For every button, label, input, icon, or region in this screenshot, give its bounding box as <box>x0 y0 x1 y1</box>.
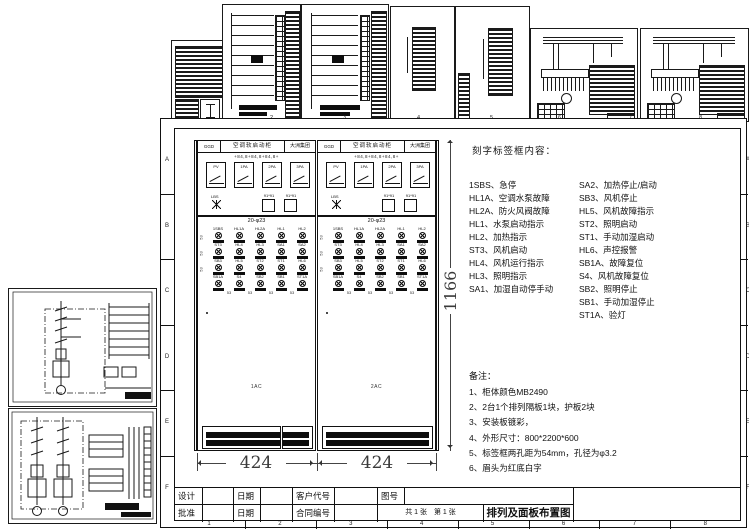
contactor-block <box>651 69 699 78</box>
list-item: HL6、声控报警 <box>579 244 691 257</box>
title-bar <box>239 112 267 116</box>
device-code: SB1 <box>397 275 405 279</box>
schematic-thumbnail-top-4 <box>390 6 455 122</box>
device-code: ST3 <box>334 243 341 247</box>
device-code: S4 <box>357 275 362 279</box>
zone-letter-right: B <box>742 223 749 229</box>
wire-comb <box>653 78 697 91</box>
device-code: HL6 <box>418 259 425 263</box>
list-item: 6、眉头为红底白字 <box>469 461 729 476</box>
indicator-lamp-symbol <box>398 280 405 287</box>
panel-meter: 3PA <box>290 162 310 188</box>
device-unit: ST1 <box>392 259 410 275</box>
indicator-lamp-symbol <box>257 232 264 239</box>
device-code: HL1A <box>234 227 244 231</box>
zone-tick <box>161 259 174 260</box>
device-unit: HL2 <box>413 227 431 243</box>
device-code: SA1 <box>277 243 285 247</box>
meter-label: 3PA <box>411 164 429 169</box>
device-code: ST1A <box>417 275 427 279</box>
dim-ext-line <box>317 453 318 471</box>
device-code: SA2 <box>298 243 306 247</box>
device-code: HL5 <box>355 259 362 263</box>
zone-letter-left: E <box>161 419 173 425</box>
indicator-lamp-symbol <box>299 248 306 255</box>
device-code: ST1A <box>297 275 307 279</box>
indicator-lamp-symbol <box>215 264 222 271</box>
window-size-label: 91*91 <box>402 193 420 198</box>
indicator-lamp-symbol <box>419 264 426 271</box>
indicator-lamp-symbol <box>398 248 405 255</box>
cabinet-header: GGD空调软启动柜大洲集团 <box>198 141 315 153</box>
component-column <box>360 15 370 101</box>
device-unit: ST2 <box>371 259 389 275</box>
cabinet-title: 空调软启动柜 <box>221 141 284 152</box>
indicator-lamp-symbol <box>257 264 264 271</box>
panel-meter: PV <box>206 162 226 188</box>
device-code: SB2 <box>256 275 264 279</box>
device-code: ST1 <box>277 259 284 263</box>
terminal-table <box>412 27 436 91</box>
zone-tick <box>161 325 174 326</box>
zone-tick <box>670 521 671 529</box>
zone-tick <box>529 521 530 529</box>
col-pitch-dim: 53 <box>360 290 380 295</box>
row-pitch-dim: 53 <box>319 251 324 255</box>
indicator-lamp-symbol <box>398 264 405 271</box>
device-unit: SA2 <box>413 243 431 259</box>
cabinet-code: GGD <box>318 141 341 152</box>
device-code: HL6 <box>298 259 305 263</box>
cabinet-title: 空调软启动柜 <box>341 141 404 152</box>
list-item: HL2A、防火风阀故障 <box>469 205 581 218</box>
device-unit: ST2 <box>251 259 269 275</box>
list-item: ST2、照明启动 <box>579 218 691 231</box>
row-pitch-dim: 53 <box>319 267 324 271</box>
terminal-strip <box>371 11 387 119</box>
zone-tick <box>387 521 388 529</box>
dim-arrow <box>198 460 201 466</box>
indicator-lamp-symbol <box>215 248 222 255</box>
switch-symbol <box>332 200 341 209</box>
device-unit: SA1 <box>392 243 410 259</box>
zone-tick <box>245 521 246 529</box>
dim-arrow <box>310 460 313 466</box>
zone-letter-left: B <box>161 223 173 229</box>
indicator-lamp-symbol <box>299 232 306 239</box>
indicator-lamp-symbol <box>215 232 222 239</box>
approve-value <box>203 505 234 522</box>
dim-cabinet1-width: 424 <box>226 455 286 472</box>
control-diagram <box>9 409 156 523</box>
busbar-lines <box>653 37 735 44</box>
device-unit: HL4 <box>350 243 368 259</box>
cabinet-unit-id: 1AC <box>198 384 315 390</box>
list-item: SB2、照明停止 <box>579 283 691 296</box>
device-unit: ST1 <box>272 259 290 275</box>
indicator-lamp-symbol <box>398 232 405 239</box>
device-code: HL5 <box>235 259 242 263</box>
dim-ext-line <box>436 453 437 471</box>
sheet-count: 共 1 张 第 1 张 <box>378 505 484 522</box>
component-blob <box>332 55 344 63</box>
hole-pattern-title: 20-φ23 <box>318 218 435 224</box>
indicator-lamp-symbol <box>377 232 384 239</box>
meter-label: 2PA <box>263 164 281 169</box>
company-name: 大洲集团 <box>404 141 435 152</box>
zone-tick <box>741 194 748 195</box>
zone-tick <box>741 456 748 457</box>
design-value <box>203 488 234 505</box>
col-pitch-dim: 53 <box>339 290 359 295</box>
device-code: HL3 <box>376 243 383 247</box>
list-item: 1、柜体颜色MB2490 <box>469 385 729 400</box>
zone-letter-left: F <box>161 485 173 491</box>
panel-meter: 2PA <box>382 162 402 188</box>
indicator-lamp-symbol <box>419 280 426 287</box>
device-unit: HL2A <box>371 227 389 243</box>
list-item: HL3、照明指示 <box>469 270 581 283</box>
device-code: HL3 <box>256 243 263 247</box>
device-code: HL1 <box>277 227 284 231</box>
device-code: SB1A <box>333 275 343 279</box>
device-unit: HL5 <box>350 259 368 275</box>
device-unit: HL1A <box>230 227 248 243</box>
device-code: SB1A <box>213 275 223 279</box>
indicator-lamp-symbol <box>236 248 243 255</box>
indicator-lamp-symbol <box>278 280 285 287</box>
zone-letter-right: E <box>742 419 749 425</box>
component-column <box>275 15 285 101</box>
col-pitch-dim: 53 <box>261 290 281 295</box>
company-name: 大洲集团 <box>284 141 315 152</box>
wire-comb <box>543 78 587 91</box>
device-unit: S4 <box>230 275 248 291</box>
indicator-lamp-symbol <box>278 264 285 271</box>
label-list-right: SA2、加热停止/启动SB3、风机停止HL5、风机故障指示ST2、照明启动ST1… <box>579 179 691 322</box>
indicator-lamp-symbol <box>257 280 264 287</box>
label-window <box>284 199 297 212</box>
meter-label: PV <box>207 164 225 169</box>
cabinet-unit-id: 2AC <box>318 384 435 390</box>
list-item: SB1、手动加湿停止 <box>579 296 691 309</box>
device-unit: HL6 <box>413 259 431 275</box>
indicator-lamp-symbol <box>377 264 384 271</box>
device-code: SA2 <box>418 243 426 247</box>
zone-tick <box>458 521 459 529</box>
schematic-thumbnail-left-2 <box>8 408 157 524</box>
schematic-thumbnail-top-5 <box>455 6 530 122</box>
device-unit: SB1 <box>272 275 290 291</box>
date-value-1 <box>261 488 293 505</box>
switch-symbol <box>212 200 221 209</box>
drawing-title: 排列及面板布置图 <box>484 505 574 522</box>
device-code: HL2 <box>418 227 425 231</box>
vent-louvre <box>206 432 309 438</box>
device-unit: HL3 <box>251 243 269 259</box>
indicator-lamp-symbol <box>335 248 342 255</box>
device-code: SB2 <box>376 275 384 279</box>
indicator-lamp-symbol <box>356 280 363 287</box>
label-window <box>404 199 417 212</box>
col-pitch-dim: 53 <box>402 290 422 295</box>
device-code: HL1 <box>397 227 404 231</box>
terminal-table <box>699 65 745 115</box>
indicator-lamp-symbol <box>419 232 426 239</box>
device-code: HL2A <box>255 227 265 231</box>
device-code: SB1 <box>277 275 285 279</box>
indicator-lamp-symbol <box>356 264 363 271</box>
list-item: S4、风机故障复位 <box>579 270 691 283</box>
device-code: ST1 <box>397 259 404 263</box>
drawing-no-value <box>405 488 574 505</box>
device-unit: SB2 <box>251 275 269 291</box>
vent-louvre <box>326 432 429 438</box>
door-handle-dot <box>206 312 208 314</box>
row-pitch-dim: 53 <box>199 235 204 239</box>
cabinet-front: GGD空调软启动柜大洲集团+84,8+84,8+84,8+PV1PA2PA3PA… <box>317 140 436 451</box>
device-unit: SB1A <box>209 275 227 291</box>
device-code: ST2 <box>256 259 263 263</box>
list-item: HL1A、空调水泵故障 <box>469 192 581 205</box>
device-code: HL4 <box>235 243 242 247</box>
panel-meter: 3PA <box>410 162 430 188</box>
indicator-lamp-symbol <box>377 248 384 255</box>
cabinet-front: GGD空调软启动柜大洲集团+84,8+84,8+84,8+PV1PA2PA3PA… <box>197 140 316 451</box>
switch-label: LBS <box>331 194 339 199</box>
device-unit: HL1A <box>350 227 368 243</box>
panel-meter: 1PA <box>234 162 254 188</box>
list-item: 3、安装板镀彩， <box>469 415 729 430</box>
indicator-lamp-symbol <box>278 232 285 239</box>
meter-spacing-dim: +84,8+84,8+84,8+ <box>198 154 315 159</box>
device-unit: HL6 <box>293 259 311 275</box>
title-block: 设计 日期 客户代号 图号 批准 日期 合同编号 共 1 张 第 1 张 排列及… <box>174 487 741 521</box>
date-value-2 <box>261 505 293 522</box>
indicator-lamp-symbol <box>299 280 306 287</box>
cabinet-header: GGD空调软启动柜大洲集团 <box>318 141 435 153</box>
label-window <box>382 199 395 212</box>
indicator-lamp-symbol <box>419 248 426 255</box>
panel-meter: PV <box>326 162 346 188</box>
device-unit: HL2A <box>251 227 269 243</box>
door-handle-dot <box>326 312 328 314</box>
col-pitch-dim: 53 <box>219 290 239 295</box>
meter-spacing-dim: +84,8+84,8+84,8+ <box>318 154 435 159</box>
list-item: ST3、风机启动 <box>469 244 581 257</box>
list-item: SB1A、故障复位 <box>579 257 691 270</box>
cabinet-code: GGD <box>198 141 221 152</box>
terminal-table <box>589 65 635 115</box>
zone-tick <box>316 521 317 529</box>
list-item: ST1、手动加湿启动 <box>579 231 691 244</box>
terminal-strip <box>458 73 470 123</box>
col-pitch-dim: 53 <box>381 290 401 295</box>
indicator-lamp-symbol <box>236 280 243 287</box>
hole-pattern-title: 20-φ23 <box>198 218 315 224</box>
contract-no-value <box>335 505 378 522</box>
approve-label: 批准 <box>175 505 203 522</box>
wire-line <box>483 39 484 79</box>
terminal-strip <box>285 11 300 119</box>
row-pitch-dim: 53 <box>199 267 204 271</box>
zone-letter-left: C <box>161 288 173 294</box>
design-label: 设计 <box>175 488 203 505</box>
dim-cabinet2-width: 424 <box>347 455 407 472</box>
section-divider <box>318 215 435 217</box>
vent-gap <box>280 426 283 449</box>
terminal-table <box>488 28 513 96</box>
device-code: ST2 <box>376 259 383 263</box>
list-item: HL4、风机运行指示 <box>469 257 581 270</box>
list-item: ST1A、验灯 <box>579 309 691 322</box>
device-code: 1SBS <box>213 227 223 231</box>
device-unit: SB1 <box>392 275 410 291</box>
zone-tick <box>161 456 174 457</box>
drawing-no-label: 图号 <box>378 488 405 505</box>
list-item: 1SBS、急停 <box>469 179 581 192</box>
indicator-lamp-symbol <box>356 232 363 239</box>
device-code: SA1 <box>397 243 405 247</box>
indicator-lamp-symbol <box>335 280 342 287</box>
vent-louvre <box>326 440 429 446</box>
notes-title: 备注： <box>469 369 496 382</box>
label-list-left: 1SBS、急停HL1A、空调水泵故障HL2A、防火风阀故障HL1、水泵启动指示H… <box>469 179 581 296</box>
window-size-label: 91*91 <box>380 193 398 198</box>
device-unit: 1SBS <box>329 227 347 243</box>
indicator-lamp-symbol <box>236 232 243 239</box>
oneline-diagram <box>9 289 156 406</box>
contactor-block <box>541 69 589 78</box>
schematic-thumbnail-top-7 <box>640 28 749 122</box>
dim-arrow <box>430 460 433 466</box>
device-code: SB3 <box>334 259 342 263</box>
indicator-lamp-symbol <box>377 280 384 287</box>
schematic-thumbnail-top-2 <box>222 4 301 122</box>
meter-label: 3PA <box>291 164 309 169</box>
device-unit: HL1 <box>392 227 410 243</box>
device-unit: HL4 <box>230 243 248 259</box>
device-code: HL2 <box>298 227 305 231</box>
date-label-1: 日期 <box>234 488 261 505</box>
device-code: 1SBS <box>333 227 343 231</box>
list-item: 2、2台1个排列隔板1块，护板2块 <box>469 400 729 415</box>
customer-code-value <box>335 488 378 505</box>
cabinet-side-flange <box>436 140 439 451</box>
window-size-label: 91*91 <box>282 193 300 198</box>
device-unit: SA1 <box>272 243 290 259</box>
zone-letter-right: C <box>742 288 749 294</box>
panel-meter: 1PA <box>354 162 374 188</box>
indicator-lamp-symbol <box>299 264 306 271</box>
device-unit: SB1A <box>329 275 347 291</box>
col-pitch-dim: 53 <box>240 290 260 295</box>
zone-letter-left: D <box>161 354 173 360</box>
indicator-lamp-symbol <box>356 248 363 255</box>
title-bar <box>320 105 360 110</box>
zone-tick <box>741 390 748 391</box>
zone-tick <box>741 325 748 326</box>
drawing-canvas: 2345678 <box>0 0 749 530</box>
indicator-lamp-symbol <box>257 248 264 255</box>
device-code: S4 <box>237 275 242 279</box>
device-unit: ST3 <box>329 243 347 259</box>
device-code: HL4 <box>355 243 362 247</box>
dim-arrow <box>447 445 453 448</box>
component-blob <box>251 55 263 63</box>
device-code: HL2A <box>375 227 385 231</box>
device-unit: SB3 <box>209 259 227 275</box>
list-item: HL1、水泵启动指示 <box>469 218 581 231</box>
device-unit: ST3 <box>209 243 227 259</box>
customer-code-label: 客户代号 <box>293 488 335 505</box>
schematic-thumbnail-top-3 <box>301 4 389 122</box>
meter-label: 1PA <box>235 164 253 169</box>
section-divider <box>198 215 315 217</box>
window-size-label: 91*91 <box>260 193 278 198</box>
row-pitch-dim: 53 <box>319 235 324 239</box>
device-unit: ST1A <box>413 275 431 291</box>
device-code: ST3 <box>214 243 221 247</box>
meter-label: 2PA <box>383 164 401 169</box>
indicator-lamp-symbol <box>335 264 342 271</box>
meter-label: PV <box>327 164 345 169</box>
label-panel-title: 刻字标签框内容： <box>472 143 556 157</box>
date-label-2: 日期 <box>234 505 261 522</box>
indicator-lamp-symbol <box>278 248 285 255</box>
device-code: HL1A <box>354 227 364 231</box>
list-item: 5、标签框两孔距为54mm，孔径为φ3.2 <box>469 446 729 461</box>
wire-line <box>407 37 408 73</box>
device-unit: 1SBS <box>209 227 227 243</box>
list-item: SA2、加热停止/启动 <box>579 179 691 192</box>
list-item: SB3、风机停止 <box>579 192 691 205</box>
contract-no-label: 合同编号 <box>293 505 335 522</box>
device-unit: SB3 <box>329 259 347 275</box>
device-unit: SA2 <box>293 243 311 259</box>
list-item: HL2、加热指示 <box>469 231 581 244</box>
switch-label: LBS <box>211 194 219 199</box>
label-window <box>262 199 275 212</box>
device-unit: HL1 <box>272 227 290 243</box>
zone-tick <box>161 390 174 391</box>
dim-arrow <box>319 460 322 466</box>
dim-total-height: 1166 <box>444 268 458 314</box>
panel-meter: 2PA <box>262 162 282 188</box>
zone-tick <box>741 259 748 260</box>
list-item: 4、外形尺寸：800*2200*600 <box>469 431 729 446</box>
device-unit: SB2 <box>371 275 389 291</box>
device-unit: S4 <box>350 275 368 291</box>
schematic-thumbnail-top-6 <box>530 28 638 122</box>
notes-list: 1、柜体颜色MB24902、2台1个排列隔板1块，护板2块3、安装板镀彩，4、外… <box>469 385 729 476</box>
device-code: SB3 <box>214 259 222 263</box>
indicator-lamp-symbol <box>236 264 243 271</box>
zone-letter-right: A <box>742 157 749 163</box>
row-pitch-dim: 53 <box>199 251 204 255</box>
vent-louvre <box>206 440 309 446</box>
main-drawing-sheet: AABBCCDDEEFF12345678 GGD空调软启动柜大洲集团+84,8+… <box>160 118 747 528</box>
list-item: HL5、风机故障指示 <box>579 205 691 218</box>
col-pitch-dim: 53 <box>282 290 302 295</box>
device-unit: HL5 <box>230 259 248 275</box>
device-unit: HL2 <box>293 227 311 243</box>
zone-letter-left: A <box>161 157 173 163</box>
title-bar <box>239 105 277 110</box>
dim-arrow <box>447 140 453 143</box>
device-unit: ST1A <box>293 275 311 291</box>
list-item: SA1、加湿自动停手动 <box>469 283 581 296</box>
